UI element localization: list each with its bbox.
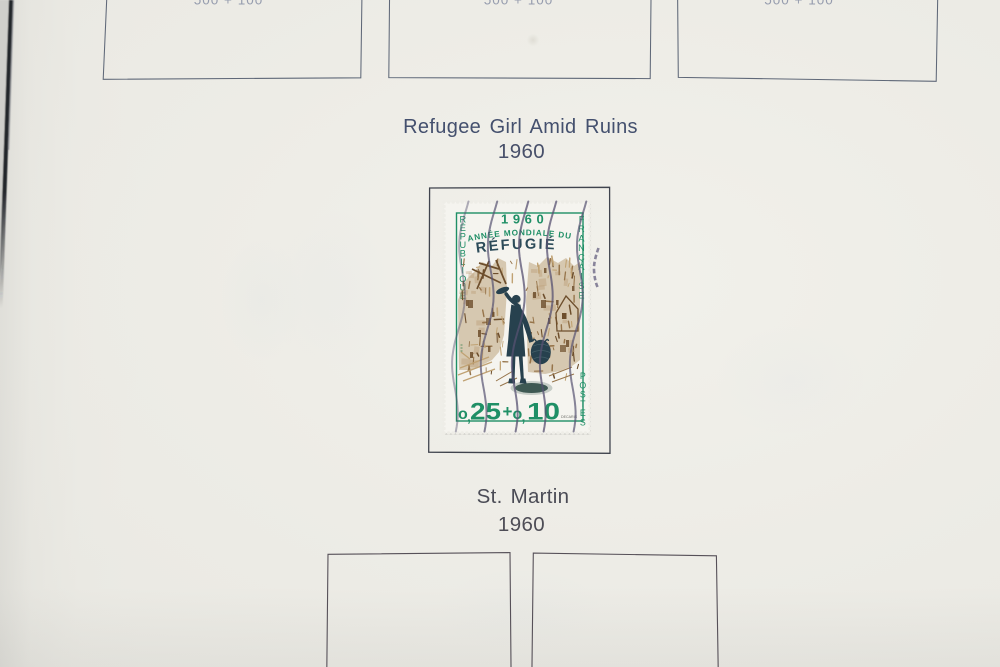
svg-text:1960: 1960 xyxy=(498,513,545,536)
svg-text:,: , xyxy=(522,409,526,425)
svg-text:Ç: Ç xyxy=(578,252,585,262)
svg-text:A: A xyxy=(578,233,585,243)
svg-text:500 + 100: 500 + 100 xyxy=(194,0,263,8)
svg-text:Refugee Girl Amid Ruins: Refugee Girl Amid Ruins xyxy=(403,116,638,138)
svg-text:St. Martin: St. Martin xyxy=(477,485,570,508)
svg-text:1960: 1960 xyxy=(498,140,545,163)
svg-text:+: + xyxy=(503,402,513,421)
svg-text:N: N xyxy=(578,243,585,253)
svg-text:500 + 100: 500 + 100 xyxy=(764,0,833,8)
svg-text:500 + 100: 500 + 100 xyxy=(484,0,553,8)
svg-text:S: S xyxy=(580,418,586,428)
svg-text:10: 10 xyxy=(527,399,560,426)
